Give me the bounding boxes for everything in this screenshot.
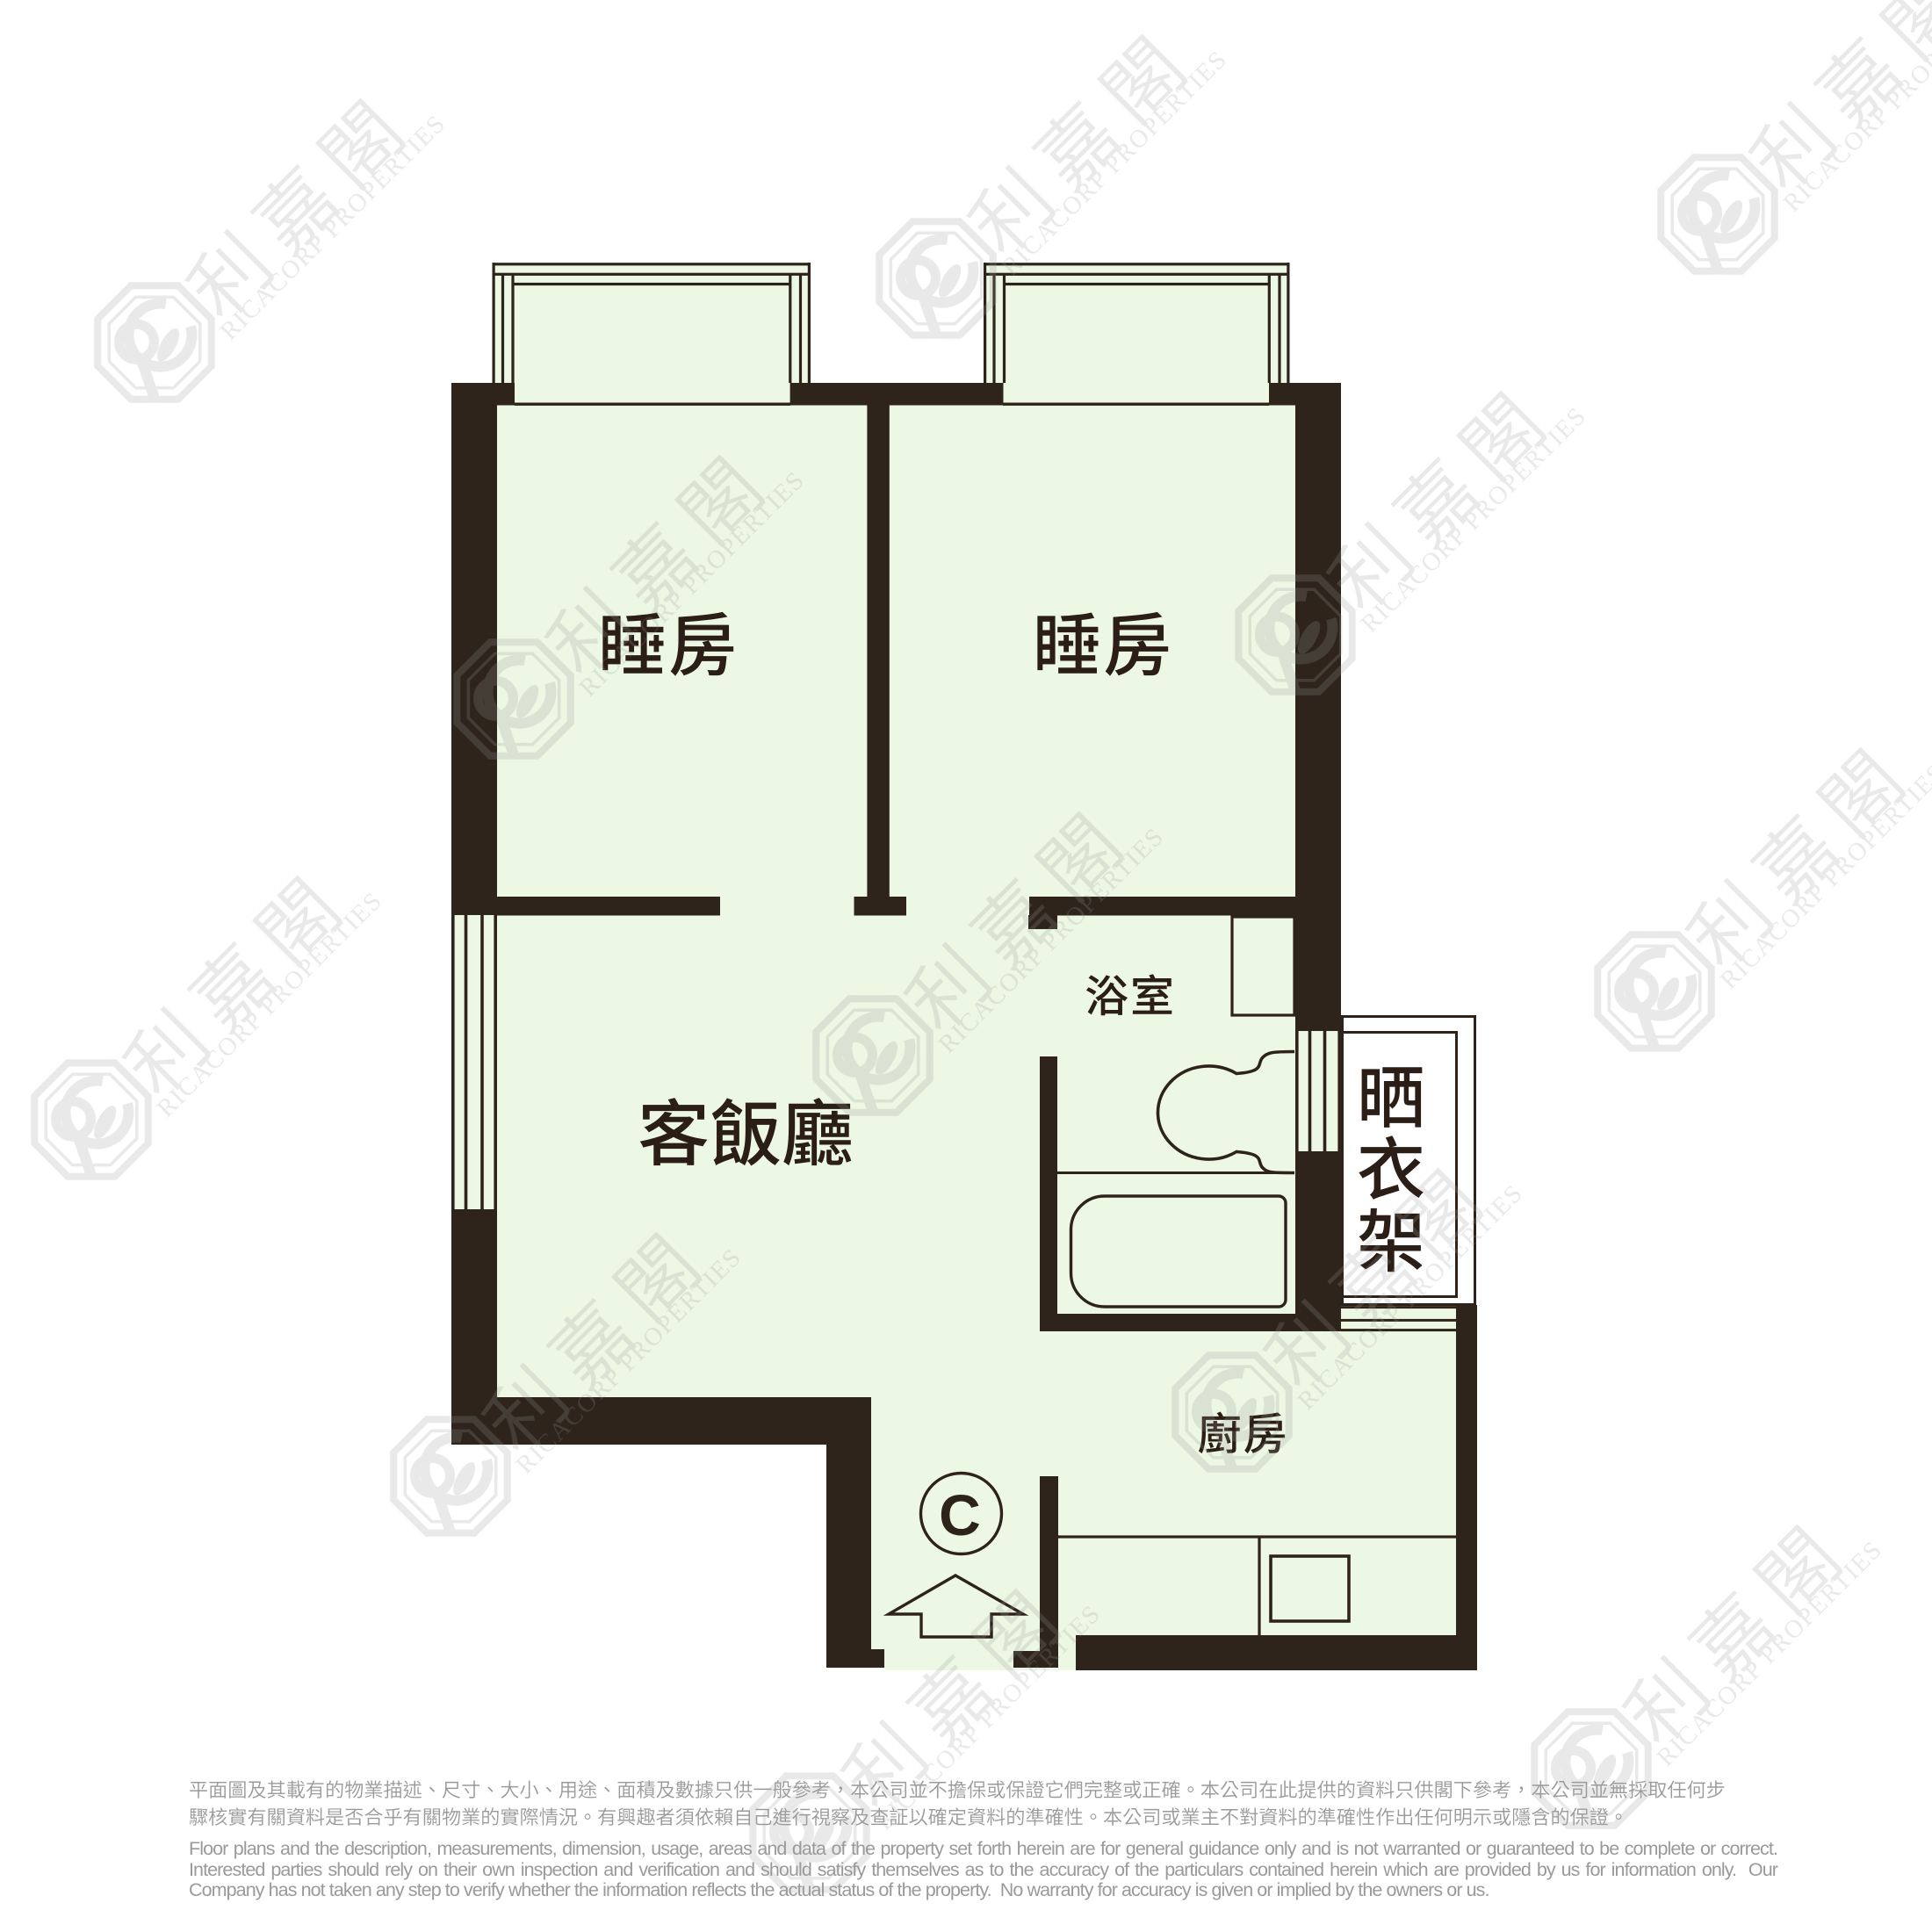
svg-text:C: C xyxy=(939,1482,981,1547)
